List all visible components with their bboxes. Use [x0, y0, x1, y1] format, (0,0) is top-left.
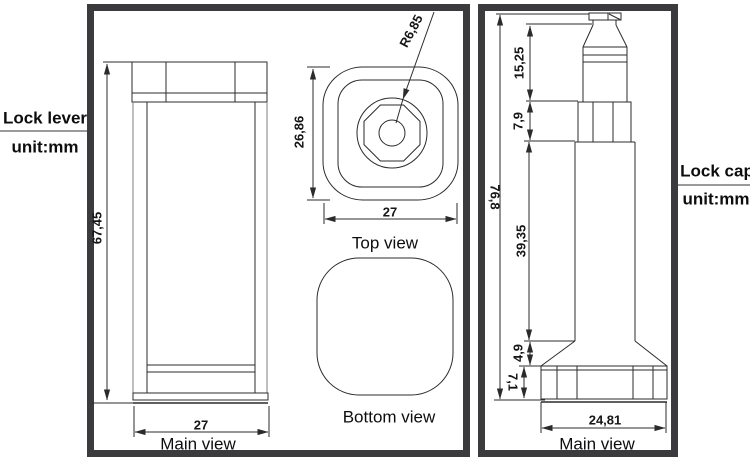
- lever-width-dimension: 27: [194, 419, 208, 432]
- lock-lever-title: Lock lever: [3, 110, 87, 127]
- cap-main-view-label: Main view: [559, 436, 635, 453]
- top-view-height-dimension: 26,86: [293, 116, 306, 149]
- lever-height-dimension: 67,45: [91, 212, 104, 245]
- cap-body-section-dimension: 39,35: [515, 225, 528, 258]
- lock-cap-main-view-drawing: [541, 13, 667, 402]
- cap-collar-section-dimension: 7,9: [512, 112, 525, 130]
- cap-base-width-dimension: 24,81: [589, 414, 622, 427]
- lock-cap-annotation-divider: [678, 184, 750, 186]
- lock-lever-annotation-divider: [0, 130, 87, 132]
- technical-drawing-page: Lock lever unit:mm Lock cap unit:mm 67,4…: [0, 0, 750, 464]
- cap-base-section-dimension: 7,1: [507, 373, 520, 391]
- top-view-width-dimension: 27: [383, 206, 397, 219]
- lock-lever-bottom-view-drawing: [317, 258, 453, 395]
- lock-cap-unit-label: unit:mm: [682, 191, 749, 208]
- cap-total-height-dimension: 76,8: [489, 184, 502, 209]
- lock-lever-main-view-drawing: [132, 62, 268, 403]
- drawing-canvas: [0, 0, 750, 464]
- lock-lever-unit-label: unit:mm: [11, 139, 78, 156]
- lock-lever-main-view-dimensions: [92, 62, 269, 437]
- lock-cap-title: Lock cap: [680, 163, 750, 180]
- cap-top-section-dimension: 15,25: [513, 47, 526, 80]
- top-view-label: Top view: [352, 235, 418, 252]
- lever-main-view-label: Main view: [160, 436, 236, 453]
- lock-lever-top-view-drawing: [323, 12, 458, 200]
- bottom-view-label: Bottom view: [343, 409, 436, 426]
- cap-flare-section-dimension: 4,9: [512, 344, 525, 362]
